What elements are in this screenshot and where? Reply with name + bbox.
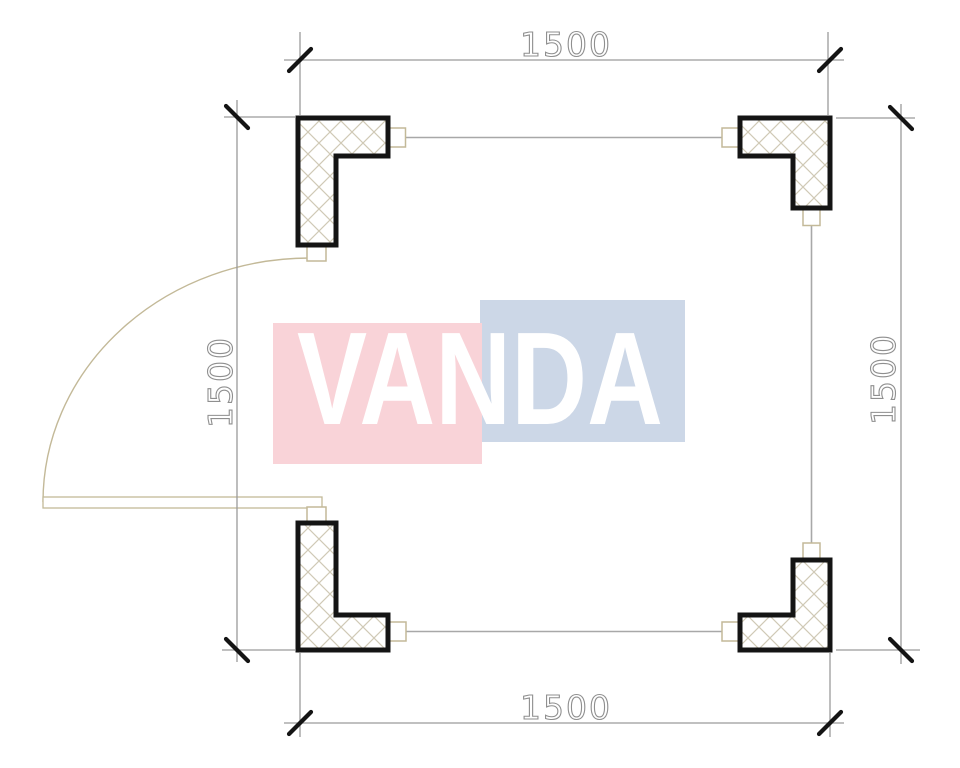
right-dimension: 1500 xyxy=(836,104,920,664)
floor-plan-drawing: VANDA xyxy=(0,0,960,768)
watermark-text: VANDA xyxy=(297,305,663,452)
dimension-label-right: 1500 xyxy=(864,333,903,425)
top-dimension: 1500 xyxy=(284,25,844,115)
stub-bottom-right-left xyxy=(722,622,739,641)
stub-bottom-right-top xyxy=(803,543,820,560)
column-top-left xyxy=(298,118,388,245)
stub-top-right-left xyxy=(722,128,739,147)
door-leaf xyxy=(43,497,322,508)
stub-top-right-bottom xyxy=(803,209,820,226)
door-swing-arc xyxy=(43,258,310,502)
bottom-dimension: 1500 xyxy=(284,653,844,737)
stub-top-left-right xyxy=(389,128,406,147)
column-top-right xyxy=(740,118,830,208)
column-bottom-left xyxy=(298,523,388,650)
stub-bottom-left-right xyxy=(389,622,406,641)
watermark: VANDA xyxy=(273,300,685,464)
floor-plan-canvas: VANDA xyxy=(0,0,960,768)
dimension-label-top: 1500 xyxy=(520,25,612,64)
dimension-label-bottom: 1500 xyxy=(520,688,612,727)
dimension-label-left: 1500 xyxy=(201,336,240,428)
column-bottom-right xyxy=(740,560,830,650)
